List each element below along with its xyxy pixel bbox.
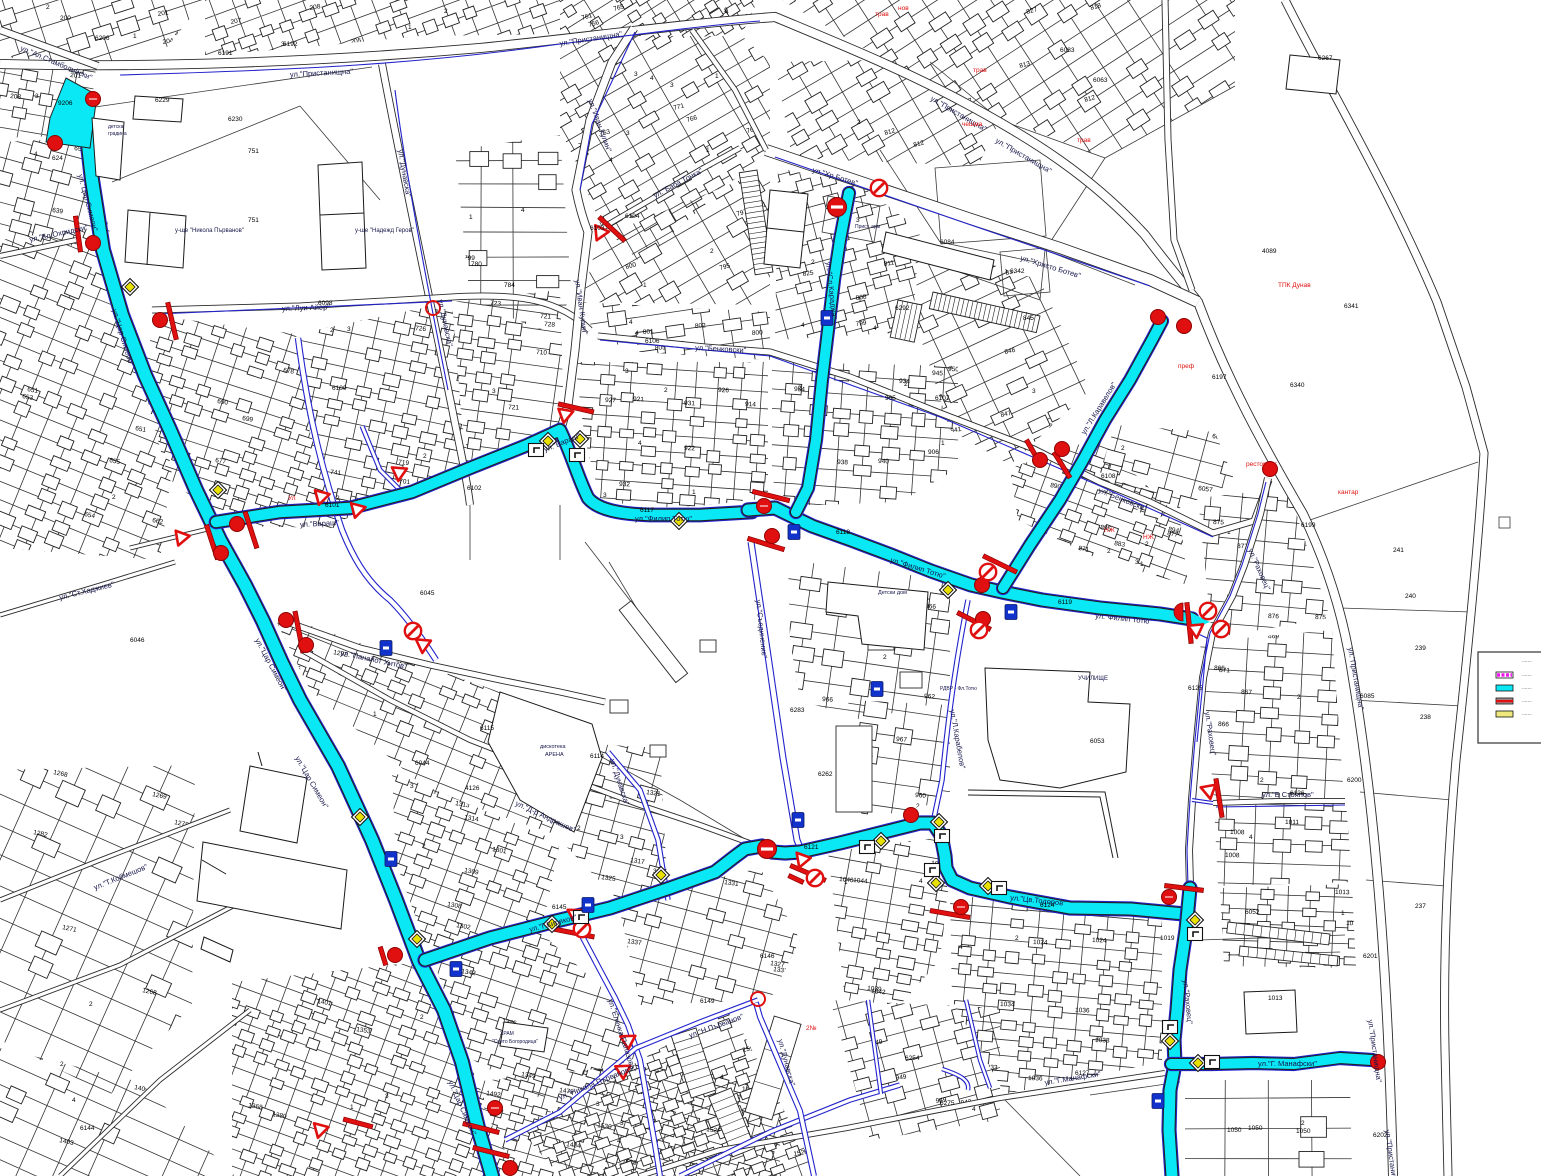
- svg-text:1: 1: [844, 879, 848, 886]
- svg-text:845: 845: [1023, 315, 1034, 322]
- svg-text:1039: 1039: [867, 985, 882, 993]
- svg-text:6044: 6044: [415, 760, 430, 767]
- svg-text:721: 721: [540, 313, 552, 321]
- svg-text:6119: 6119: [1058, 599, 1072, 606]
- svg-text:ХРАМ: ХРАМ: [500, 1031, 514, 1037]
- svg-text:801: 801: [643, 328, 655, 336]
- svg-text:1: 1: [941, 440, 945, 447]
- svg-text:208: 208: [10, 93, 22, 101]
- svg-text:4: 4: [725, 9, 729, 16]
- svg-text:4: 4: [72, 1097, 76, 1104]
- svg-text:6199: 6199: [1301, 522, 1316, 529]
- svg-text:1: 1: [1140, 561, 1144, 568]
- svg-text:2: 2: [577, 825, 581, 832]
- svg-text:950: 950: [948, 366, 959, 373]
- svg-text:6106: 6106: [645, 338, 660, 345]
- svg-text:4: 4: [873, 325, 877, 332]
- svg-text:4: 4: [919, 878, 923, 885]
- svg-text:3: 3: [385, 1093, 389, 1100]
- svg-text:1: 1: [692, 489, 696, 496]
- svg-text:6118: 6118: [836, 529, 850, 536]
- svg-text:Прист. арм: Прист. арм: [855, 224, 881, 230]
- svg-text:6083: 6083: [1060, 47, 1075, 54]
- svg-text:6145: 6145: [552, 904, 567, 911]
- svg-text:3: 3: [625, 368, 629, 375]
- svg-text:6275: 6275: [940, 1100, 955, 1107]
- svg-text:2: 2: [112, 494, 116, 501]
- svg-text:2: 2: [1015, 935, 1019, 942]
- svg-text:3: 3: [35, 93, 39, 100]
- svg-text:6197: 6197: [1212, 374, 1227, 381]
- svg-text:2: 2: [664, 387, 668, 394]
- svg-text:6114: 6114: [590, 753, 604, 760]
- svg-text:3: 3: [492, 388, 496, 395]
- svg-text:240: 240: [1405, 593, 1416, 600]
- svg-text:3: 3: [1135, 559, 1139, 566]
- svg-text:трав: трав: [1077, 137, 1091, 144]
- svg-text:6104: 6104: [625, 213, 640, 220]
- svg-text:1050: 1050: [1248, 1125, 1263, 1132]
- svg-text:1024: 1024: [1092, 937, 1107, 945]
- svg-text:751: 751: [248, 217, 259, 224]
- svg-text:2: 2: [1121, 445, 1125, 452]
- svg-text:4: 4: [801, 322, 805, 329]
- svg-text:751: 751: [248, 148, 259, 155]
- svg-text:6098: 6098: [318, 300, 333, 307]
- svg-text:784: 784: [504, 282, 515, 289]
- svg-text:922: 922: [684, 445, 695, 452]
- svg-text:4: 4: [521, 207, 525, 214]
- svg-text:867: 867: [1241, 689, 1252, 696]
- svg-text:1: 1: [643, 282, 647, 289]
- svg-text:1050: 1050: [1227, 1127, 1242, 1134]
- svg-text:6149: 6149: [700, 998, 715, 1005]
- svg-text:721: 721: [508, 404, 520, 412]
- svg-text:ТПК Дунав: ТПК Дунав: [1278, 282, 1311, 289]
- svg-text:905: 905: [885, 395, 896, 402]
- svg-text:6191: 6191: [218, 50, 233, 57]
- svg-text:3: 3: [626, 130, 630, 137]
- svg-text:967: 967: [896, 736, 908, 744]
- svg-text:6340: 6340: [1290, 382, 1305, 389]
- svg-text:865: 865: [1214, 665, 1225, 672]
- svg-text:6262: 6262: [818, 771, 833, 778]
- svg-text:6117: 6117: [640, 507, 654, 514]
- svg-text:914: 914: [745, 401, 756, 408]
- svg-text:6085: 6085: [1360, 693, 1375, 700]
- svg-text:РДВР - Фл.Тотю: РДВР - Фл.Тотю: [940, 686, 977, 692]
- svg-text:6053: 6053: [1090, 738, 1105, 745]
- svg-text:6206: 6206: [95, 35, 110, 42]
- svg-text:6103: 6103: [590, 225, 605, 232]
- svg-text:АРЕНА: АРЕНА: [545, 752, 564, 758]
- svg-text:1013: 1013: [1268, 995, 1283, 1002]
- svg-text:3: 3: [347, 326, 351, 333]
- svg-text:802: 802: [695, 322, 707, 330]
- svg-text:1: 1: [408, 24, 412, 31]
- svg-text:4: 4: [629, 319, 633, 326]
- svg-text:921: 921: [633, 396, 644, 403]
- svg-text:2: 2: [1260, 777, 1264, 784]
- svg-text:2: 2: [1107, 548, 1111, 555]
- svg-text:1044: 1044: [853, 877, 868, 885]
- svg-text:710: 710: [536, 349, 548, 357]
- svg-text:876: 876: [1268, 613, 1279, 620]
- svg-text:.......: .......: [1522, 698, 1532, 704]
- svg-text:6126: 6126: [1290, 790, 1305, 797]
- svg-text:у-ще "Надежд Геров": у-ще "Надежд Геров": [355, 228, 414, 234]
- svg-text:дискотека: дискотека: [540, 744, 566, 750]
- svg-text:3: 3: [1032, 388, 1036, 395]
- svg-text:6342: 6342: [1010, 268, 1025, 275]
- svg-text:3: 3: [634, 71, 638, 78]
- svg-text:4: 4: [650, 75, 654, 82]
- svg-text:954: 954: [794, 386, 805, 393]
- svg-text:4: 4: [972, 1106, 976, 1113]
- svg-text:4089: 4089: [1262, 248, 1277, 255]
- svg-text:Детски дом: Детски дом: [878, 590, 907, 596]
- svg-text:239: 239: [1415, 645, 1426, 652]
- svg-text:6121: 6121: [804, 844, 819, 851]
- svg-text:1036: 1036: [1028, 1075, 1043, 1083]
- svg-text:866: 866: [1218, 721, 1229, 728]
- svg-text:2: 2: [857, 119, 861, 126]
- svg-text:4: 4: [720, 1074, 724, 1081]
- svg-text:УЧИЛИЩЕ: УЧИЛИЩЕ: [1078, 676, 1108, 682]
- svg-text:1034: 1034: [1000, 1001, 1015, 1009]
- svg-text:6124: 6124: [1040, 902, 1055, 909]
- svg-text:940: 940: [878, 458, 889, 465]
- svg-text:6230: 6230: [228, 116, 243, 123]
- svg-text:6146: 6146: [760, 953, 775, 960]
- svg-text:2: 2: [811, 259, 815, 266]
- svg-text:3: 3: [603, 492, 607, 499]
- svg-text:ул."Г. Манафски": ул."Г. Манафски": [1258, 1059, 1317, 1068]
- svg-text:2: 2: [1297, 694, 1301, 701]
- svg-text:6125: 6125: [1188, 685, 1203, 692]
- svg-text:кантар: кантар: [1338, 489, 1359, 496]
- svg-text:2: 2: [336, 495, 340, 502]
- svg-text:4: 4: [638, 440, 642, 447]
- svg-text:6229: 6229: [155, 97, 170, 104]
- svg-text:НЖ: НЖ: [1104, 527, 1115, 534]
- svg-text:200: 200: [60, 15, 71, 22]
- svg-text:237: 237: [1415, 903, 1426, 910]
- svg-text:6101: 6101: [325, 502, 340, 509]
- svg-text:811: 811: [883, 260, 895, 268]
- svg-text:1: 1: [469, 214, 473, 221]
- svg-text:3: 3: [670, 82, 674, 89]
- svg-text:6107: 6107: [935, 395, 950, 402]
- svg-text:624: 624: [52, 155, 63, 162]
- svg-text:3: 3: [620, 1120, 624, 1127]
- svg-text:2: 2: [1145, 541, 1149, 548]
- svg-text:2: 2: [904, 381, 908, 388]
- svg-text:6254: 6254: [905, 1055, 920, 1062]
- svg-text:3: 3: [620, 834, 624, 841]
- svg-text:6100: 6100: [332, 385, 347, 392]
- svg-text:.......: .......: [1522, 672, 1532, 678]
- svg-text:4: 4: [1249, 834, 1253, 841]
- svg-text:.......: .......: [1522, 658, 1532, 664]
- svg-text:6144: 6144: [80, 1125, 95, 1132]
- svg-text:2: 2: [1301, 1120, 1305, 1127]
- svg-text:3: 3: [856, 217, 860, 224]
- svg-text:1: 1: [350, 1104, 354, 1111]
- svg-text:2№: 2№: [806, 1025, 817, 1032]
- svg-text:1: 1: [133, 33, 137, 40]
- svg-text:нов: нов: [898, 5, 909, 12]
- svg-text:"Свето Богородица": "Свето Богородица": [492, 1039, 538, 1045]
- svg-text:.......: .......: [1522, 711, 1532, 717]
- svg-text:926: 926: [718, 387, 729, 394]
- svg-text:1008: 1008: [1225, 852, 1240, 859]
- svg-text:трав: трав: [973, 67, 987, 74]
- svg-text:966: 966: [822, 696, 834, 704]
- svg-text:1011: 1011: [1285, 819, 1299, 826]
- svg-text:6045: 6045: [420, 590, 435, 597]
- svg-text:4: 4: [34, 151, 38, 158]
- svg-text:927: 927: [605, 397, 616, 404]
- svg-text:726: 726: [415, 325, 427, 333]
- svg-text:6115: 6115: [480, 725, 494, 732]
- svg-text:4: 4: [609, 157, 613, 164]
- svg-text:2: 2: [60, 1061, 64, 1068]
- svg-text:2: 2: [710, 248, 714, 255]
- svg-text:719: 719: [398, 459, 410, 467]
- svg-text:ул."Б Стоянов": ул."Б Стоянов": [1262, 790, 1314, 799]
- svg-text:Ул: Ул: [288, 495, 296, 502]
- svg-text:875: 875: [1213, 519, 1224, 526]
- svg-text:6192: 6192: [283, 41, 298, 48]
- svg-text:детска: детска: [108, 124, 124, 130]
- svg-text:780: 780: [471, 261, 482, 268]
- svg-text:962: 962: [924, 693, 936, 701]
- svg-text:6292: 6292: [895, 305, 910, 312]
- svg-text:4126: 4126: [465, 785, 480, 792]
- svg-text:чешма: чешма: [962, 121, 983, 128]
- svg-text:1036: 1036: [1075, 1007, 1090, 1015]
- svg-text:2: 2: [420, 1014, 424, 1021]
- svg-text:1050: 1050: [1296, 1128, 1311, 1135]
- svg-text:6200: 6200: [1347, 777, 1362, 784]
- svg-text:960: 960: [915, 792, 927, 800]
- svg-text:241: 241: [1393, 547, 1404, 554]
- svg-text:6283: 6283: [790, 707, 805, 714]
- svg-text:1024: 1024: [1033, 939, 1048, 947]
- svg-text:931: 931: [684, 400, 695, 407]
- svg-text:4: 4: [635, 330, 639, 337]
- svg-text:723: 723: [490, 300, 502, 308]
- svg-text:6201: 6201: [1363, 953, 1378, 960]
- svg-text:4: 4: [959, 944, 963, 951]
- svg-text:9206: 9206: [58, 100, 73, 107]
- svg-text:1: 1: [1341, 910, 1345, 917]
- svg-text:1008: 1008: [1230, 829, 1245, 836]
- svg-text:2: 2: [89, 1001, 93, 1008]
- svg-text:2: 2: [46, 4, 50, 11]
- svg-text:1: 1: [715, 73, 719, 80]
- svg-text:2: 2: [423, 453, 427, 460]
- svg-text:6063: 6063: [1093, 77, 1108, 84]
- svg-text:6052: 6052: [1245, 909, 1260, 916]
- svg-text:1019: 1019: [1160, 935, 1175, 942]
- svg-text:1: 1: [706, 147, 710, 154]
- svg-text:1: 1: [373, 711, 377, 718]
- svg-text:НЖ: НЖ: [1143, 534, 1154, 541]
- svg-text:.......: .......: [1522, 685, 1532, 691]
- svg-text:преф: преф: [1178, 363, 1195, 370]
- svg-text:6267: 6267: [1318, 55, 1333, 62]
- svg-text:ул."Филип Тотю": ул."Филип Тотю": [635, 514, 692, 523]
- svg-text:2: 2: [444, 8, 448, 15]
- svg-text:1038: 1038: [1095, 1037, 1110, 1045]
- svg-text:6102: 6102: [467, 485, 482, 492]
- svg-text:ресторант: ресторант: [1246, 461, 1277, 468]
- svg-text:у-ще "Никола Първанов": у-ще "Никола Първанов": [175, 228, 244, 234]
- svg-text:938: 938: [837, 459, 848, 466]
- svg-text:2: 2: [422, 843, 426, 850]
- svg-text:945: 945: [932, 370, 943, 377]
- svg-text:800: 800: [752, 329, 764, 337]
- svg-text:906: 906: [928, 449, 939, 456]
- svg-text:2: 2: [330, 327, 334, 334]
- svg-text:3: 3: [596, 1101, 600, 1108]
- svg-text:6046: 6046: [130, 637, 145, 644]
- svg-text:6341: 6341: [1344, 303, 1359, 310]
- svg-text:6108: 6108: [1101, 473, 1116, 480]
- svg-text:728: 728: [544, 321, 556, 329]
- svg-text:3: 3: [410, 783, 414, 790]
- svg-text:238: 238: [1420, 714, 1431, 721]
- svg-text:6127: 6127: [1075, 1070, 1090, 1077]
- svg-text:трав: трав: [875, 11, 889, 18]
- svg-text:2: 2: [883, 654, 887, 661]
- svg-text:932: 932: [619, 481, 630, 488]
- svg-text:градина: градина: [108, 131, 127, 137]
- svg-text:1013: 1013: [1335, 889, 1350, 896]
- svg-text:6084: 6084: [940, 239, 955, 246]
- svg-text:6202: 6202: [1373, 1132, 1388, 1139]
- svg-text:741: 741: [330, 469, 342, 477]
